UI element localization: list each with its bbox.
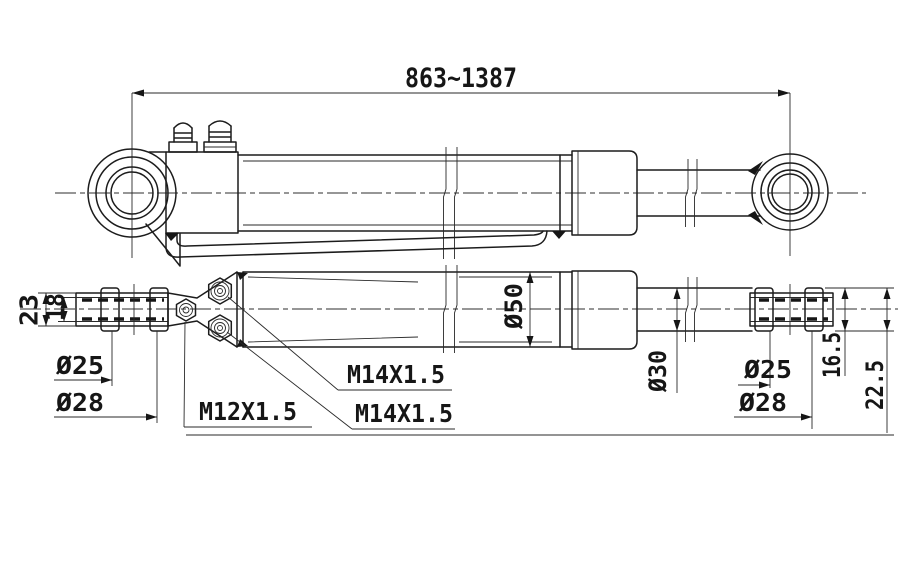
right-d28-arrow [801,414,812,421]
left-eye-collar-2 [150,288,168,331]
thread-grease-label: M12X1.5 [199,397,297,426]
pipe-outer-line [166,231,547,257]
dim-arrow-left [132,90,144,97]
dim-bushing-od-right-label: Ø28 [738,388,787,417]
head-block-outline [166,152,238,233]
dim-right-eye-a-label: 16.5 [818,332,846,378]
bore-arrow-bottom [527,336,534,347]
side-right-eye [752,93,828,256]
dim-overall-length-label: 863~1387 [405,63,517,94]
port-upper-circle3 [218,289,223,294]
right-offset-extension-lines [825,288,894,331]
right-eye-hidden-bore [759,300,828,319]
rod-arrow-bottom [674,320,681,331]
dim-arrow-right [778,90,790,97]
port-fitting-1 [169,123,197,152]
dim-rod-label: Ø30 [644,350,672,393]
d225-arrow-bottom [884,320,891,331]
cylinder-head-block [149,152,238,233]
grease-hex-circle1 [180,304,193,317]
plan-head-taper [168,272,248,347]
left-d28-arrow [146,414,157,421]
dim-right-eye-b-label: 22.5 [861,360,889,410]
left-eye-collar-1 [101,288,119,331]
port-lower-circle2 [215,323,226,334]
rod-plan-break-lines [686,277,698,342]
fitting1-hex-flange [169,142,197,152]
annotations: Ø50 Ø30 23 18 Ø25 Ø28 [15,272,895,435]
plan-view [20,265,898,353]
d165-arrow-bottom [842,320,849,331]
left-pin-extension-lines [112,331,157,423]
rod-eye-weld-bottom [748,211,763,225]
fitting1-dome [174,123,192,128]
left-pin-dimensions: Ø25 Ø28 [54,331,157,423]
fitting2-stem [209,126,231,142]
port-lower-circle1 [211,319,229,337]
d225-arrow-top [884,288,891,299]
port-lower-circle3 [218,326,223,331]
dim-pin-bore-right-label: Ø25 [743,355,792,384]
port-upper-circle1 [211,282,229,300]
head-taper-lines [168,272,237,347]
d165-arrow-top [842,288,849,299]
right-pin-dimensions: Ø25 Ø28 [734,331,812,429]
port-boss-lower [209,315,232,341]
dim-bushing-od-left-label: Ø28 [55,388,104,417]
left-eye-width-dimensions: 23 18 [15,293,77,326]
right-eye-collar-2 [805,288,823,331]
thread-callouts: M14X1.5 M14X1.5 M12X1.5 [184,297,455,429]
dim-eye-outer-width-label: 23 [15,294,44,326]
grease-fitting-hex [177,299,196,321]
port-fitting-2 [204,121,236,152]
overall-length-dimension: 863~1387 [132,63,790,97]
port-boss-upper [209,278,232,304]
thread-port-lower-label: M14X1.5 [355,399,453,428]
gland-cap-plan [572,271,637,349]
barrel-break-lines [444,147,458,259]
drawing-sheet: 863~1387 [0,0,908,569]
left-eye-hidden-bore [82,300,164,319]
plan-right-eye [750,284,833,335]
fitting2-dome [209,121,231,126]
dim-eye-inner-width-label: 18 [41,293,70,321]
piston-rod-plan [637,277,752,342]
technical-drawing: 863~1387 [0,0,908,569]
side-view: 863~1387 [55,63,866,266]
dim-bore-label: Ø50 [500,283,528,330]
grease-hex-circle2 [183,307,189,313]
rod-arrow-top [674,288,681,299]
thread-port-upper-label: M14X1.5 [347,360,445,389]
plan-left-eye [76,284,168,335]
dim-pin-bore-left-label: Ø25 [55,351,104,380]
hydraulic-pipe [165,231,566,257]
bore-arrow-top [527,272,534,283]
right-eye-collar-1 [755,288,773,331]
rod-dimension: Ø30 [644,288,681,393]
left-eye-gusset [146,224,180,266]
fitting1-stem [174,128,192,142]
bore-dimension: Ø50 [500,272,534,347]
port-upper-circle2 [215,286,226,297]
pipe-weld-right [552,231,566,239]
